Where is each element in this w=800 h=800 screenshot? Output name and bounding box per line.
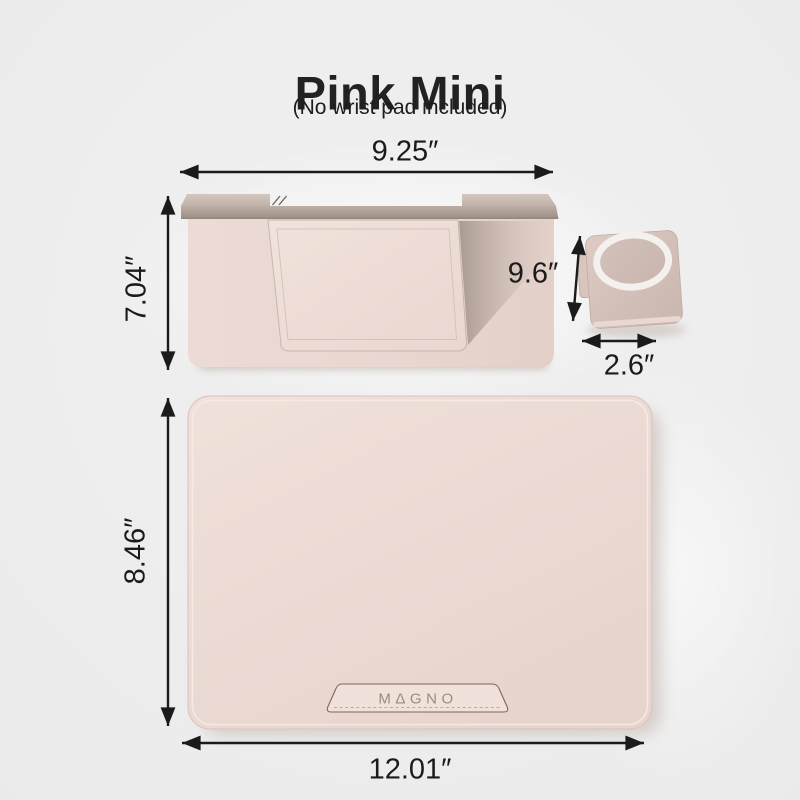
dimension-label-phone-mount-width: 2.6″ [604, 350, 655, 383]
brand-letter: O [441, 691, 457, 708]
laptop-stand-illustration [181, 194, 559, 370]
brand-logo: MΔGNO [378, 691, 457, 708]
dimension-label-stand-height: 7.04″ [121, 256, 154, 323]
product-illustration [0, 0, 800, 800]
dimension-label-stand-depth: 9.6″ [508, 258, 559, 291]
product-image: { "header": { "title": "Pink Mini", "sub… [0, 0, 800, 800]
dimension-label-mat-height: 8.46″ [120, 518, 153, 585]
brand-letter: G [410, 691, 426, 708]
desk-mat [188, 396, 652, 729]
brand-letter: M [378, 691, 395, 708]
desk-mat-illustration [188, 396, 662, 736]
stand-top-bar-edge [181, 217, 558, 219]
phone-mount-illustration [576, 230, 686, 338]
dimension-label-mat-width: 12.01″ [369, 754, 452, 787]
brand-letter-stylized-a: Δ [395, 691, 410, 708]
stand-top-bar-right [462, 194, 556, 206]
brand-letter: N [426, 691, 441, 708]
stand-top-bar-front [181, 206, 559, 219]
stand-kickstand-flap [268, 220, 467, 351]
stand-hinge-mark [273, 196, 281, 205]
dimension-label-stand-width: 9.25″ [372, 136, 439, 169]
stand-top-bar-left [181, 194, 270, 206]
stand-hinge-mark [279, 196, 287, 205]
magsafe-ring-icon [595, 233, 670, 290]
